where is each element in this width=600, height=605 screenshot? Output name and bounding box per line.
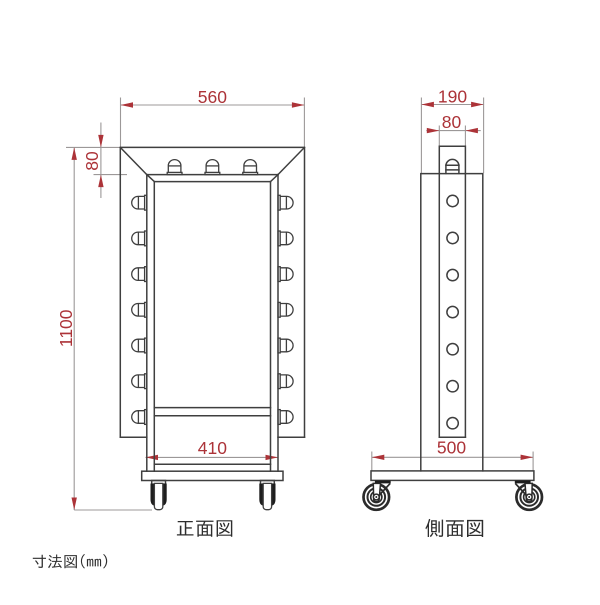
svg-text:410: 410 xyxy=(198,438,227,458)
svg-text:560: 560 xyxy=(198,87,227,107)
svg-text:80: 80 xyxy=(82,151,102,171)
svg-text:1100: 1100 xyxy=(56,309,76,347)
svg-text:500: 500 xyxy=(437,438,466,458)
svg-text:80: 80 xyxy=(442,112,462,132)
svg-text:190: 190 xyxy=(438,87,467,107)
